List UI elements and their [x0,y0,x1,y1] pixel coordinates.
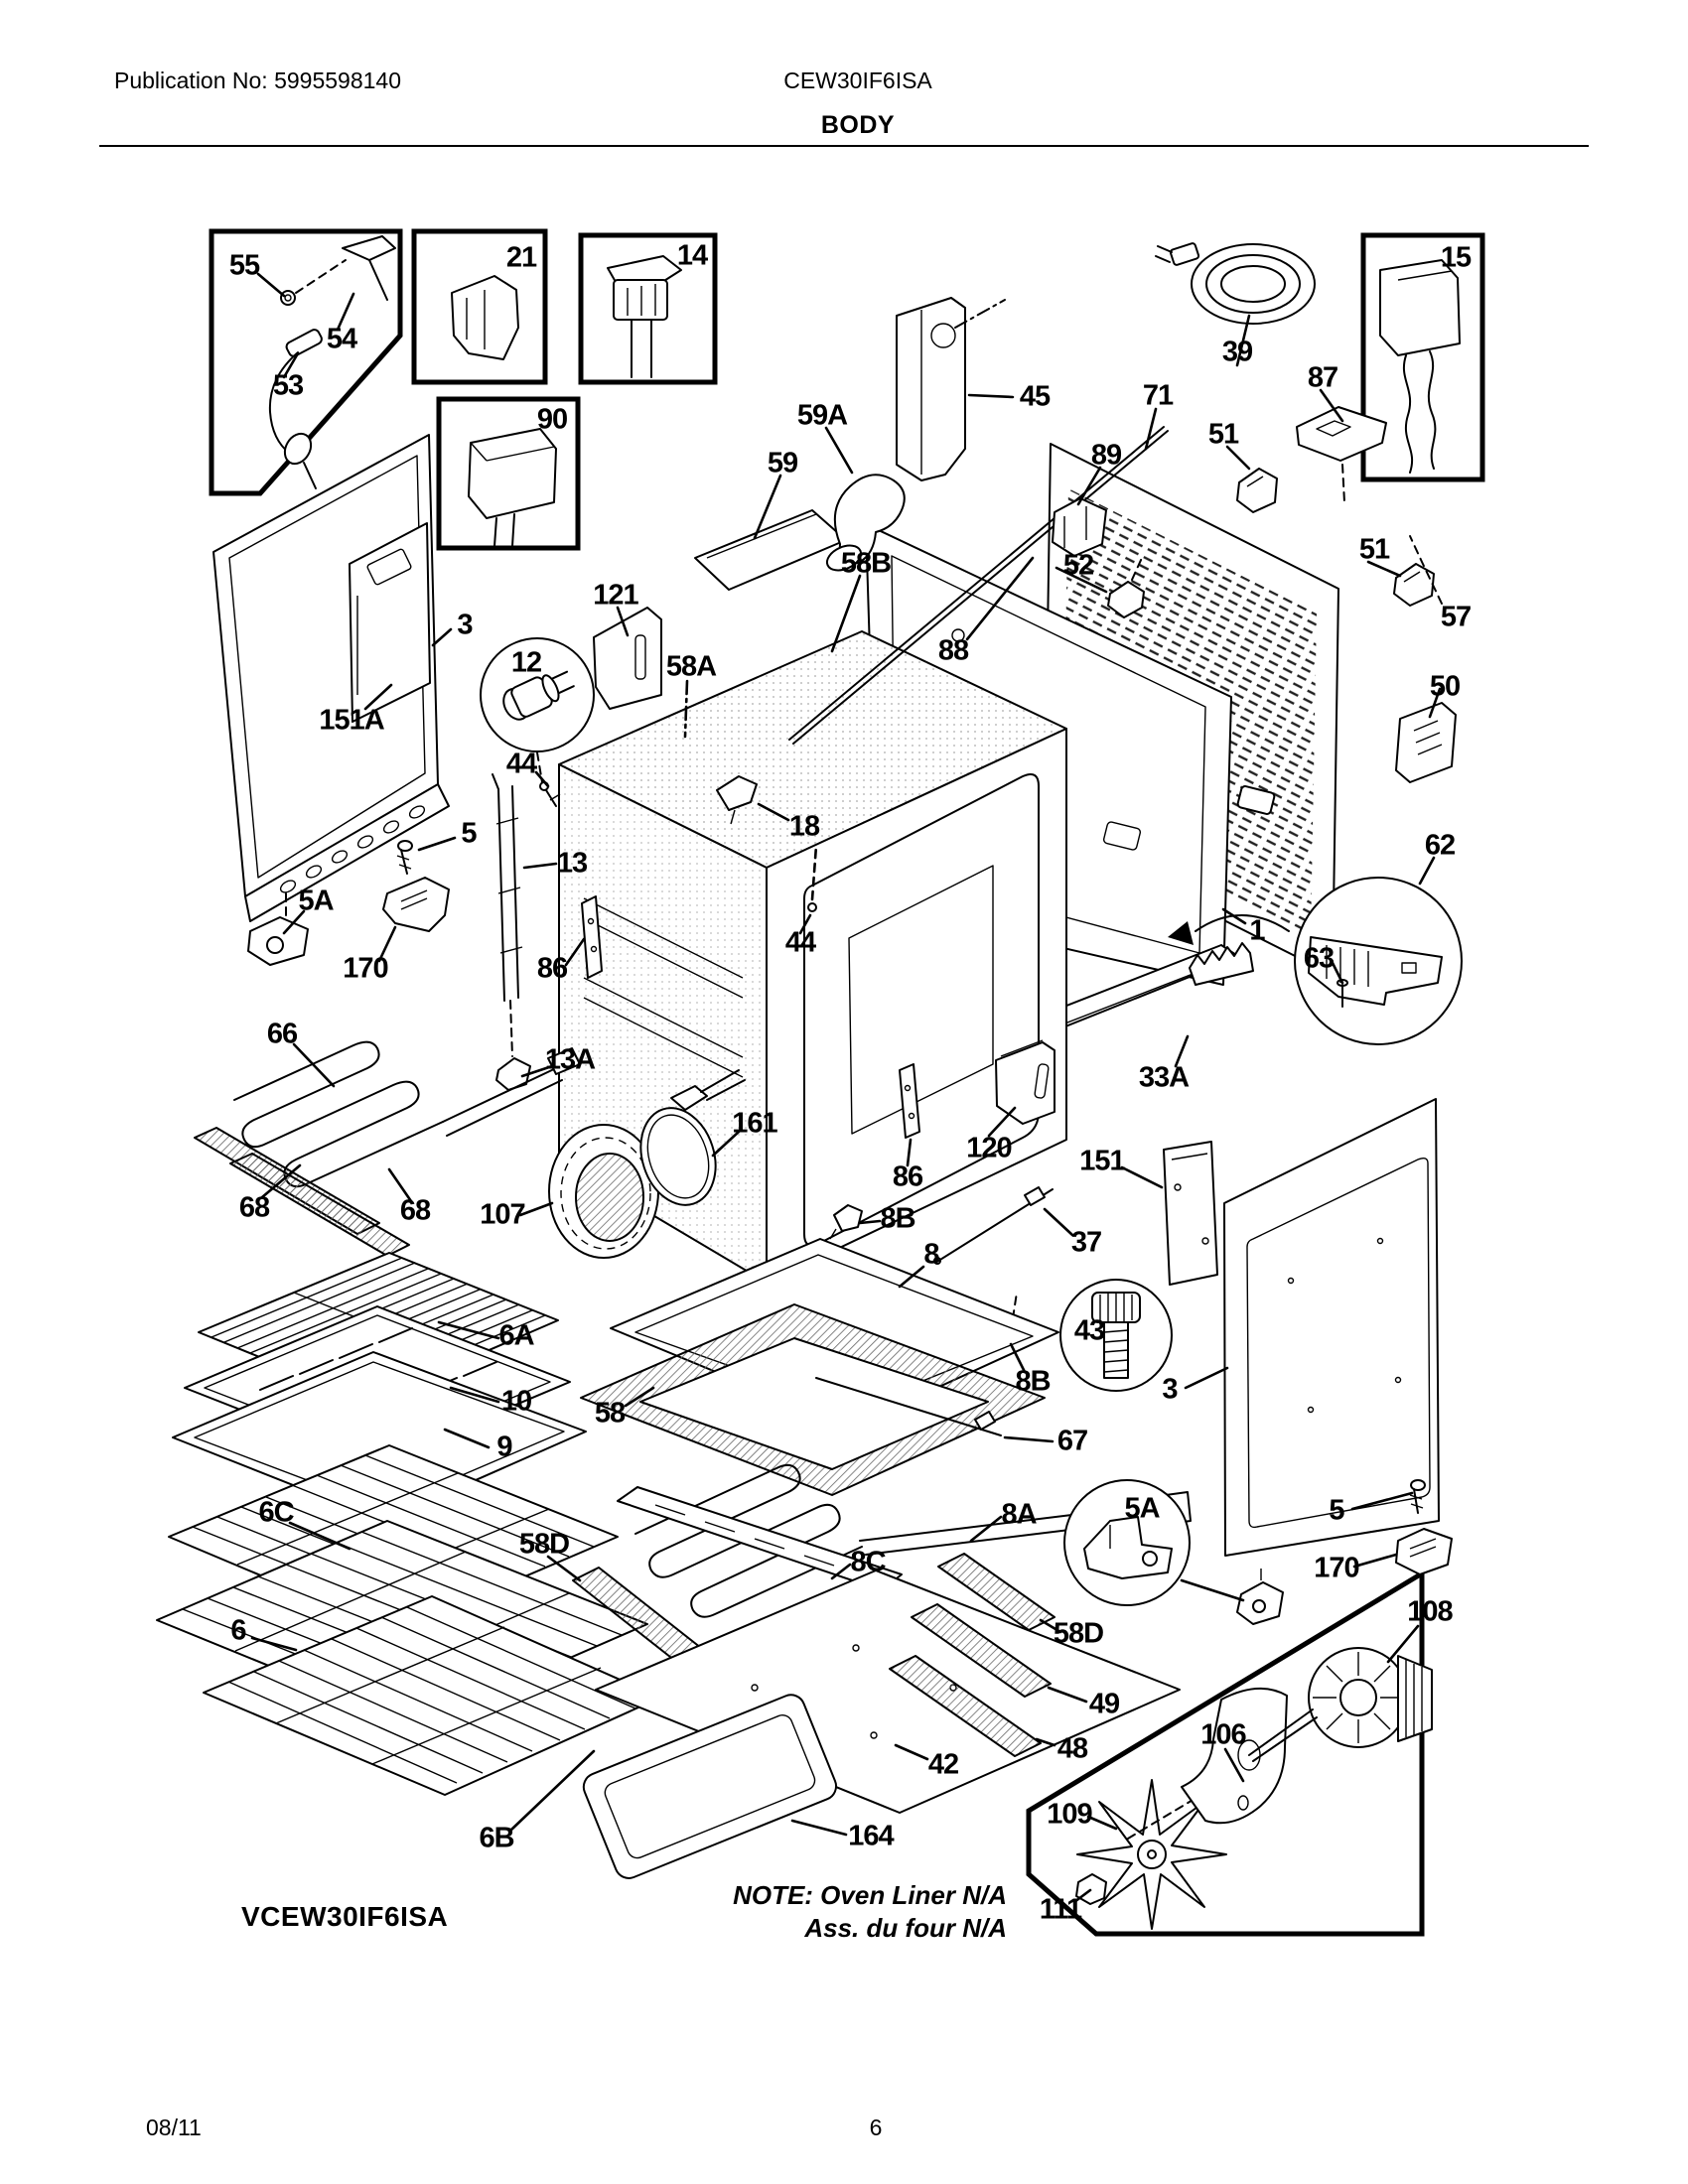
part-label-59a-13: 59A [797,402,847,431]
part-label-108-66: 108 [1407,1598,1452,1627]
part-label-151a-25: 151A [319,707,383,736]
part-label-107-44: 107 [480,1201,524,1230]
part-label-67-57: 67 [1057,1428,1087,1456]
part-label-66-37: 66 [267,1021,297,1049]
part-label-21-3: 21 [506,244,536,273]
part-label-53-2: 53 [273,372,303,401]
part-label-10-52: 10 [501,1388,531,1417]
part-label-13-29: 13 [557,850,587,879]
part-label-45-12: 45 [1020,383,1050,412]
part-label-50-19: 50 [1430,673,1460,702]
part-label-8-49: 8 [923,1241,938,1270]
part-label-44-36: 44 [785,929,815,958]
part-label-170-64: 170 [1314,1555,1358,1583]
part-label-121-21: 121 [593,582,637,611]
part-label-5a-60: 5A [1124,1495,1159,1524]
part-label-151-42: 151 [1079,1148,1124,1176]
part-label-86-43: 86 [893,1163,922,1192]
part-label-87-7: 87 [1308,364,1337,393]
part-label-5-28: 5 [461,820,476,849]
part-label-86-35: 86 [537,955,567,984]
part-label-58d-62: 58D [519,1531,569,1560]
part-label-8c-63: 8C [850,1549,885,1577]
part-label-58d-67: 58D [1054,1620,1103,1649]
part-label-6b-75: 6B [479,1825,513,1853]
part-label-18-27: 18 [789,813,819,842]
part-label-164-73: 164 [848,1823,893,1851]
part-label-111-74: 111 [1040,1896,1081,1925]
part-label-5a-33: 5A [298,887,333,916]
footer-page-number: 6 [870,2115,883,2141]
part-label-44-26: 44 [506,751,536,779]
oven-liner-note-line2: Ass. du four N/A [733,1912,1007,1945]
part-label-43-51: 43 [1074,1317,1104,1346]
part-label-58a-24: 58A [666,653,716,682]
part-label-6-65: 6 [230,1617,245,1646]
part-label-1-31: 1 [1249,917,1264,946]
part-label-170-34: 170 [343,955,387,984]
part-label-71-9: 71 [1143,382,1173,411]
part-label-8a-59: 8A [1001,1501,1036,1530]
part-label-88-20: 88 [938,637,968,666]
part-label-90-5: 90 [537,406,567,435]
part-label-59-14: 59 [768,450,797,478]
part-label-120-41: 120 [966,1135,1011,1163]
part-label-15-8: 15 [1441,244,1471,273]
part-label-12-23: 12 [511,649,541,678]
part-label-8b-54: 8B [1015,1368,1050,1397]
part-label-89-11: 89 [1091,442,1121,471]
part-label-8b-45: 8B [880,1205,914,1234]
part-label-54-1: 54 [327,326,356,354]
part-label-106-69: 106 [1200,1721,1245,1750]
part-label-33a-39: 33A [1139,1064,1189,1093]
part-label-161-40: 161 [732,1110,776,1139]
part-label-6c-58: 6C [258,1499,293,1528]
part-label-14-4: 14 [677,242,707,271]
part-label-62-30: 62 [1425,832,1455,861]
part-label-58b-15: 58B [841,550,891,579]
part-label-63-32: 63 [1304,945,1334,974]
part-label-9-56: 9 [496,1433,511,1462]
part-label-52-16: 52 [1063,552,1093,581]
part-label-109-72: 109 [1047,1801,1091,1830]
part-label-68-48: 68 [400,1197,430,1226]
document-page: Publication No: 5995598140 CEW30IF6ISA B… [0,0,1688,2184]
part-label-51-17: 51 [1359,536,1389,565]
part-label-42-71: 42 [928,1751,958,1780]
variant-model: VCEW30IF6ISA [241,1901,448,1933]
part-label-37-46: 37 [1071,1229,1101,1258]
part-labels-layer: 5554532114903987157151894559A5958B525157… [0,0,1688,2184]
part-label-13a-38: 13A [545,1046,595,1075]
footer-date: 08/11 [146,2115,202,2141]
part-label-55-0: 55 [229,252,259,281]
oven-liner-note-line1: NOTE: Oven Liner N/A [733,1879,1007,1912]
part-label-68-47: 68 [239,1194,269,1223]
part-label-3-55: 3 [1162,1376,1177,1405]
part-label-5-61: 5 [1329,1497,1343,1526]
part-label-39-6: 39 [1222,339,1252,367]
part-label-48-70: 48 [1057,1735,1087,1764]
part-label-57-18: 57 [1441,604,1471,632]
part-label-51-10: 51 [1208,421,1238,450]
part-label-6a-50: 6A [498,1322,533,1351]
part-label-49-68: 49 [1089,1691,1119,1719]
part-label-58-53: 58 [595,1400,625,1429]
oven-liner-note: NOTE: Oven Liner N/A Ass. du four N/A [733,1879,1007,1945]
part-label-3-22: 3 [457,612,472,640]
